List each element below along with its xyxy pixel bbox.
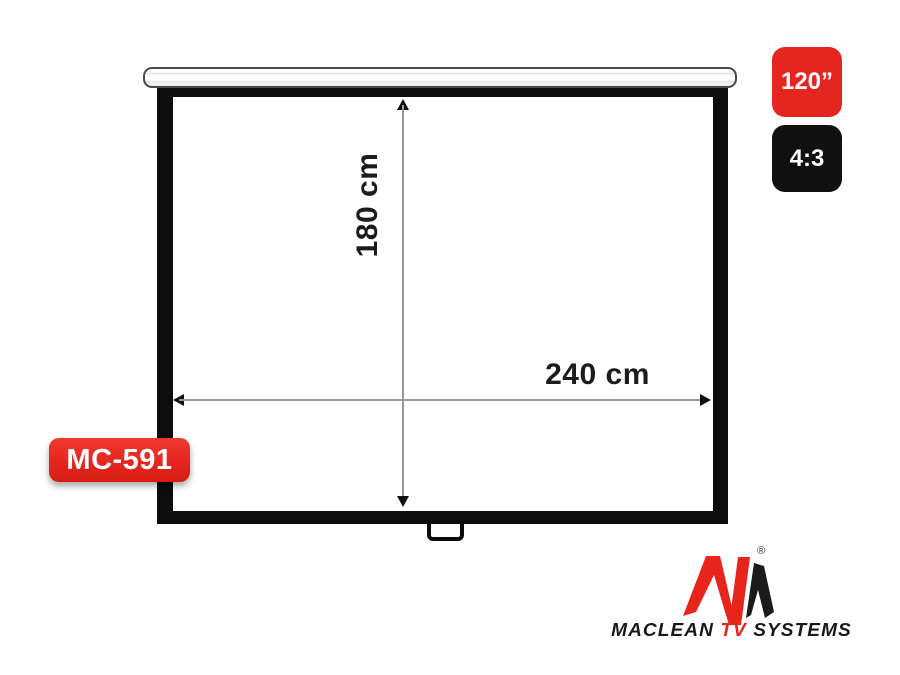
- brand-wordmark-tv: TV: [720, 620, 747, 640]
- brand-wordmark-prefix: MACLEAN: [611, 620, 714, 640]
- maclean-m-icon: [680, 554, 780, 629]
- screen-roller-casing: [143, 67, 737, 88]
- screen-size-badge: 120”: [772, 47, 842, 117]
- model-badge: MC-591: [49, 438, 190, 482]
- aspect-ratio-badge: 4:3: [772, 125, 842, 192]
- registered-trademark-icon: ®: [757, 545, 765, 557]
- screen-frame: [157, 87, 728, 524]
- product-dimension-diagram: 180 cm 240 cm MC-591 120” 4:3 ® MACLEAN …: [0, 0, 900, 675]
- brand-wordmark-suffix: SYSTEMS: [753, 620, 852, 640]
- brand-wordmark: MACLEAN TV SYSTEMS: [582, 620, 882, 642]
